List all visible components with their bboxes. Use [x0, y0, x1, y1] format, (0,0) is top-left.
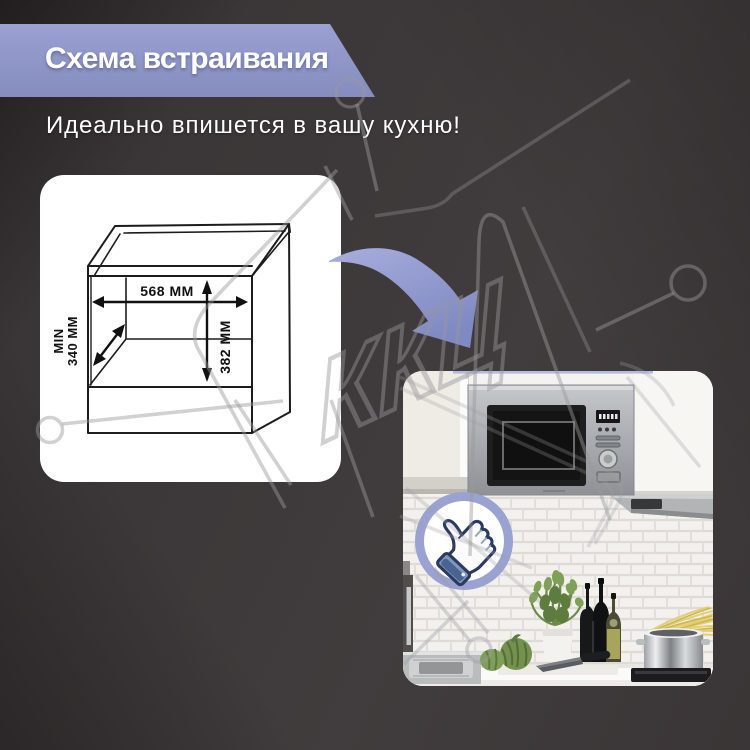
svg-text:MIN: MIN [51, 328, 66, 353]
svg-text:568 ММ: 568 ММ [140, 283, 194, 299]
svg-text:382 ММ: 382 ММ [217, 320, 233, 374]
svg-text:340 ММ: 340 ММ [65, 316, 80, 366]
